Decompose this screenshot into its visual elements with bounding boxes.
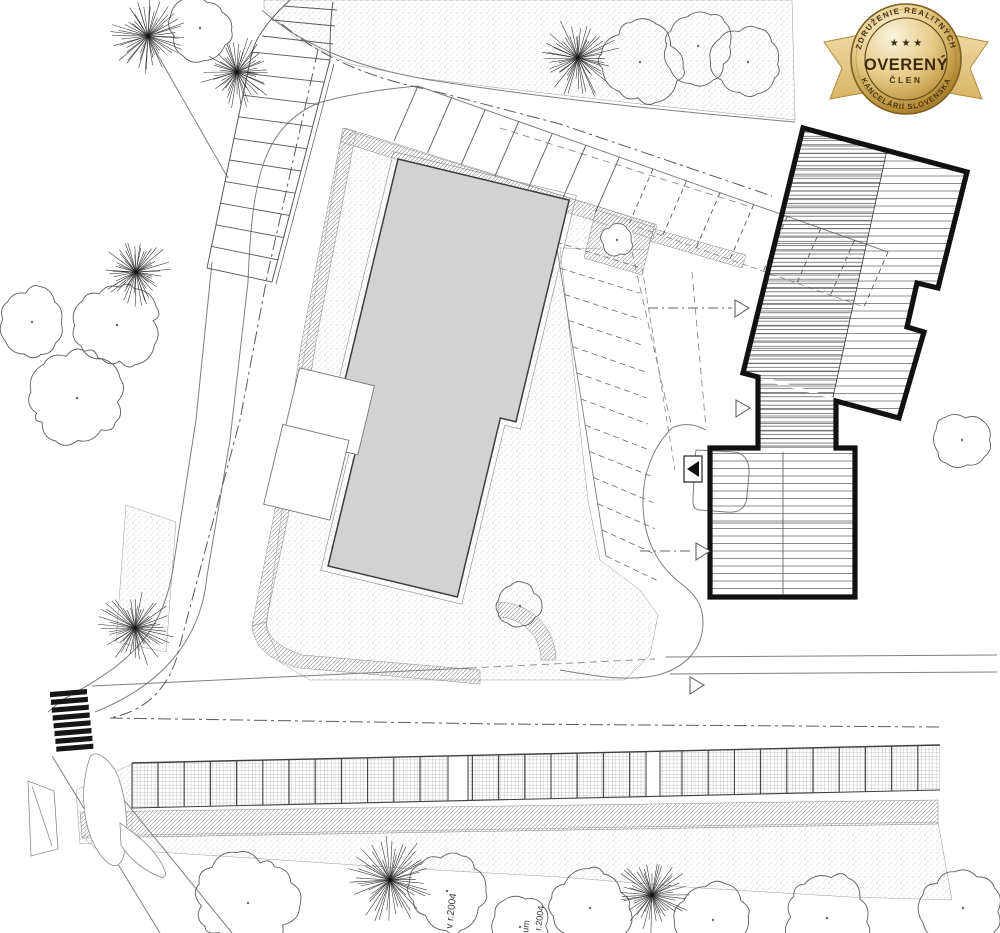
parking-stall-line bbox=[428, 98, 452, 153]
road-curb-line bbox=[666, 655, 997, 657]
parking-stall-line bbox=[564, 294, 641, 319]
parking-stall-line bbox=[225, 182, 295, 194]
deciduous-tree-icon bbox=[933, 414, 990, 467]
badge-subtitle: ČLEN bbox=[889, 74, 922, 85]
road-centerline bbox=[110, 718, 940, 727]
direction-arrow-icon bbox=[736, 400, 750, 417]
badge-title: OVERENÝ bbox=[864, 55, 948, 74]
parking-row-gap bbox=[646, 750, 660, 797]
parking-stall-line bbox=[581, 399, 648, 424]
road-curb-line bbox=[670, 672, 997, 674]
parking-rail bbox=[207, 0, 290, 268]
deciduous-tree-icon bbox=[195, 851, 301, 933]
parking-stall-line bbox=[252, 52, 330, 60]
parking-stall-line bbox=[594, 478, 654, 503]
crosswalk-stripe bbox=[52, 705, 89, 713]
parking-stall-line bbox=[216, 225, 284, 238]
parking-rail-dashed bbox=[642, 268, 675, 470]
dashed-road-edge bbox=[632, 252, 672, 428]
parking-stall-line bbox=[629, 169, 653, 224]
parking-stall-line bbox=[207, 268, 272, 282]
crosswalk-stripe bbox=[53, 712, 90, 720]
road-curb-line bbox=[95, 282, 248, 712]
crosswalk-stripe bbox=[55, 728, 92, 736]
direction-arrow-icon bbox=[690, 677, 704, 694]
tree-label: r.2004 bbox=[533, 905, 546, 931]
road-curb-line bbox=[672, 424, 706, 430]
parking-stall-line bbox=[595, 157, 619, 212]
pedestrian-crosswalk bbox=[50, 689, 93, 752]
parking-stall-line bbox=[573, 347, 645, 372]
parking-stall-line bbox=[585, 425, 650, 450]
deciduous-tree-icon bbox=[169, 0, 233, 62]
parking-stall-line bbox=[528, 133, 552, 188]
tree-label: v r.2004 bbox=[444, 892, 459, 929]
crosswalk-stripe bbox=[55, 736, 92, 744]
parking-stall-line bbox=[230, 160, 302, 171]
parking-stall-line bbox=[696, 193, 720, 248]
crosswalk-stripe bbox=[54, 720, 91, 728]
conifer-tree-icon bbox=[110, 0, 184, 74]
conifer-tree-icon bbox=[106, 243, 171, 307]
deciduous-tree-icon bbox=[73, 284, 159, 367]
road-curb-line bbox=[148, 38, 228, 178]
stippled-pavement bbox=[116, 505, 176, 652]
parking-stall-line bbox=[663, 181, 687, 236]
parking-stall-line bbox=[569, 321, 644, 346]
parking-stall-line bbox=[394, 86, 418, 141]
parking-stall-line bbox=[221, 203, 290, 215]
parking-stall-line bbox=[562, 145, 586, 200]
parking-stall-line bbox=[598, 504, 655, 529]
parking-row-gap bbox=[448, 755, 468, 802]
verified-member-badge: ZDRUŽENIE REALITNÝCH KANCELÁRIÍ SLOVENSK… bbox=[824, 4, 988, 114]
parking-stall-line bbox=[560, 268, 640, 293]
direction-arrow-icon bbox=[735, 300, 749, 317]
dashed-road-edge bbox=[692, 272, 706, 428]
crosswalk-stripe bbox=[56, 744, 93, 752]
site-plan-image: v r.2004umr.2004 ZDRUŽENIE REALITNÝCH KA… bbox=[0, 0, 1000, 933]
stippled-pavement bbox=[264, 0, 795, 120]
crosswalk-stripe bbox=[51, 697, 88, 705]
parking-stall-line bbox=[577, 373, 647, 398]
badge-stars-icon: ★ ★ ★ bbox=[890, 38, 922, 49]
parking-stall-line bbox=[461, 110, 485, 165]
parking-stall-line bbox=[589, 451, 651, 476]
deciduous-tree-icon bbox=[0, 286, 62, 358]
tree-label: um bbox=[520, 920, 531, 933]
parking-stall-line bbox=[212, 246, 278, 259]
